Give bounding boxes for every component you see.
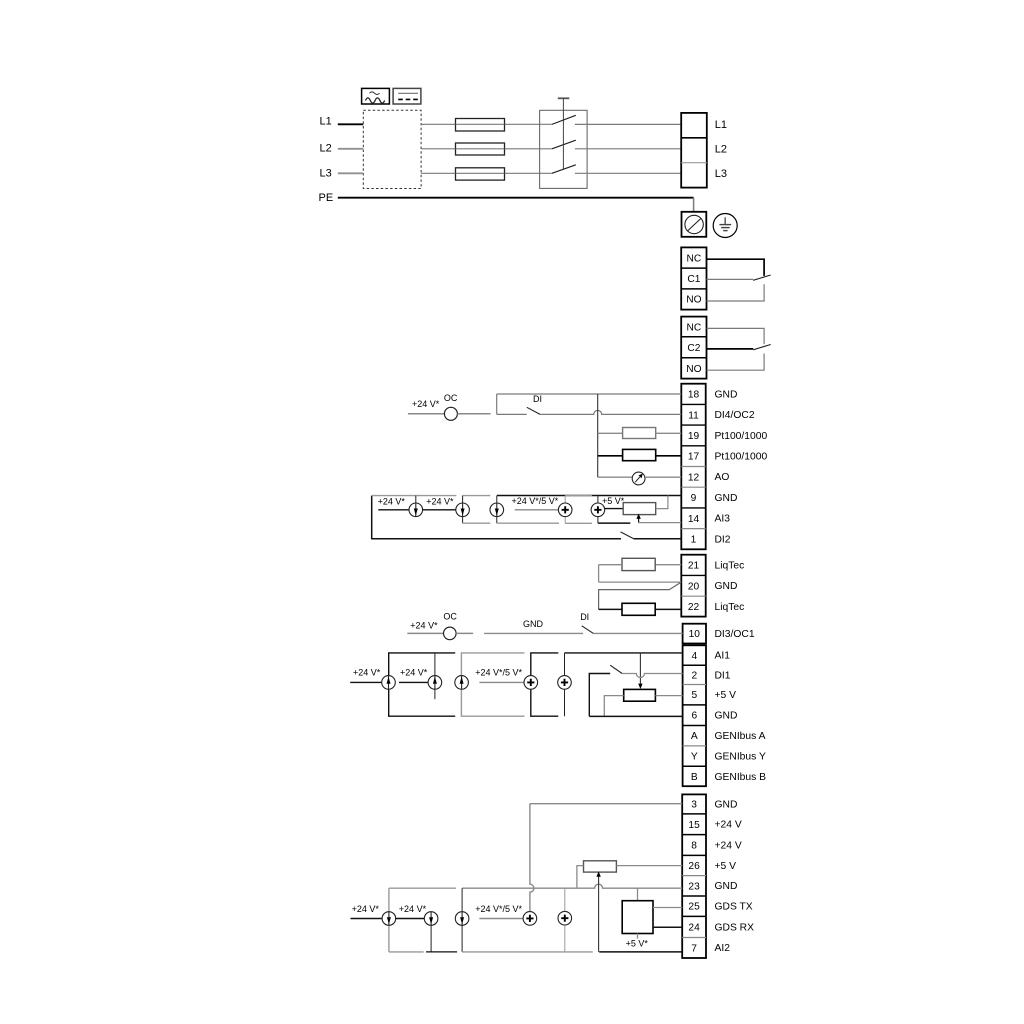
svg-text:+24 V*/5 V*: +24 V*/5 V* bbox=[512, 496, 559, 506]
svg-text:GENIbus A: GENIbus A bbox=[715, 731, 766, 742]
svg-text:GDS RX: GDS RX bbox=[715, 922, 755, 933]
svg-text:GENIbus B: GENIbus B bbox=[715, 772, 767, 783]
svg-text:+24 V*: +24 V* bbox=[353, 667, 381, 677]
svg-text:L2: L2 bbox=[320, 143, 332, 155]
svg-text:+24 V*: +24 V* bbox=[412, 399, 440, 409]
svg-text:GND: GND bbox=[715, 711, 738, 722]
svg-text:GND: GND bbox=[523, 619, 544, 629]
svg-text:DI4/OC2: DI4/OC2 bbox=[715, 410, 755, 421]
svg-text:6: 6 bbox=[691, 711, 697, 722]
svg-text:NO: NO bbox=[686, 295, 701, 306]
svg-text:AI1: AI1 bbox=[715, 651, 731, 662]
svg-text:2: 2 bbox=[691, 670, 697, 681]
svg-text:L3: L3 bbox=[320, 167, 332, 179]
svg-text:+24 V*/5 V*: +24 V*/5 V* bbox=[475, 904, 522, 914]
svg-text:+24 V*: +24 V* bbox=[410, 620, 438, 630]
svg-text:24: 24 bbox=[688, 923, 700, 934]
svg-text:DI1: DI1 bbox=[715, 670, 731, 681]
svg-text:14: 14 bbox=[688, 514, 700, 525]
svg-text:Y: Y bbox=[691, 752, 698, 763]
svg-text:8: 8 bbox=[691, 841, 697, 852]
svg-text:DI: DI bbox=[580, 612, 589, 622]
svg-text:1: 1 bbox=[691, 535, 697, 546]
svg-text:L1: L1 bbox=[715, 119, 727, 131]
svg-text:12: 12 bbox=[688, 473, 700, 484]
svg-text:+5 V*: +5 V* bbox=[602, 496, 625, 506]
svg-text:NC: NC bbox=[687, 253, 702, 264]
svg-text:+24 V: +24 V bbox=[715, 820, 742, 831]
svg-text:18: 18 bbox=[688, 390, 700, 401]
svg-text:23: 23 bbox=[688, 881, 700, 892]
svg-text:5: 5 bbox=[691, 690, 697, 701]
svg-text:20: 20 bbox=[688, 581, 700, 592]
svg-text:GND: GND bbox=[715, 493, 738, 504]
svg-text:AI2: AI2 bbox=[715, 943, 731, 954]
svg-text:22: 22 bbox=[688, 602, 700, 613]
svg-text:NC: NC bbox=[687, 323, 702, 334]
svg-text:17: 17 bbox=[688, 452, 700, 463]
svg-text:Pt100/1000: Pt100/1000 bbox=[715, 452, 768, 463]
svg-text:25: 25 bbox=[688, 902, 700, 913]
svg-text:LiqTec: LiqTec bbox=[715, 602, 745, 613]
svg-text:19: 19 bbox=[688, 431, 700, 442]
svg-text:A: A bbox=[691, 731, 698, 742]
svg-text:LiqTec: LiqTec bbox=[715, 560, 745, 571]
svg-text:DI2: DI2 bbox=[715, 534, 731, 545]
svg-text:DI3/OC1: DI3/OC1 bbox=[715, 629, 755, 640]
svg-text:L3: L3 bbox=[715, 168, 727, 180]
svg-text:26: 26 bbox=[688, 861, 700, 872]
svg-text:+5 V: +5 V bbox=[715, 861, 737, 872]
svg-text:+5 V: +5 V bbox=[715, 690, 737, 701]
svg-text:PE: PE bbox=[319, 192, 334, 204]
svg-text:AI3: AI3 bbox=[715, 514, 731, 525]
svg-text:+24 V*/5 V*: +24 V*/5 V* bbox=[475, 667, 522, 677]
svg-text:GND: GND bbox=[715, 581, 738, 592]
svg-text:Pt100/1000: Pt100/1000 bbox=[715, 431, 768, 442]
svg-text:GENIbus Y: GENIbus Y bbox=[715, 752, 766, 763]
svg-text:+24 V: +24 V bbox=[715, 840, 742, 851]
svg-text:+24 V*: +24 V* bbox=[378, 496, 406, 506]
svg-text:15: 15 bbox=[688, 820, 700, 831]
svg-text:11: 11 bbox=[688, 410, 699, 421]
svg-text:+24 V*: +24 V* bbox=[400, 667, 428, 677]
svg-text:3: 3 bbox=[691, 800, 697, 811]
svg-text:C1: C1 bbox=[687, 274, 700, 285]
svg-text:GND: GND bbox=[715, 389, 738, 400]
svg-text:AO: AO bbox=[715, 472, 730, 483]
svg-text:DI: DI bbox=[533, 394, 542, 404]
svg-text:4: 4 bbox=[691, 651, 697, 662]
svg-text:B: B bbox=[691, 772, 698, 783]
svg-text:7: 7 bbox=[691, 943, 697, 954]
svg-text:GDS TX: GDS TX bbox=[715, 902, 753, 913]
svg-text:NO: NO bbox=[686, 364, 701, 375]
svg-text:+24 V*: +24 V* bbox=[399, 904, 427, 914]
svg-text:10: 10 bbox=[689, 629, 701, 640]
svg-text:OC: OC bbox=[443, 612, 457, 622]
svg-text:GND: GND bbox=[715, 881, 738, 892]
svg-text:21: 21 bbox=[688, 561, 700, 572]
svg-text:+24 V*: +24 V* bbox=[426, 496, 454, 506]
svg-text:GND: GND bbox=[715, 800, 738, 811]
svg-text:OC: OC bbox=[444, 393, 458, 403]
svg-text:L2: L2 bbox=[715, 143, 727, 155]
svg-text:+5 V*: +5 V* bbox=[626, 939, 649, 949]
svg-text:+24 V*: +24 V* bbox=[352, 904, 380, 914]
svg-text:C2: C2 bbox=[687, 343, 700, 354]
svg-text:9: 9 bbox=[691, 493, 697, 504]
svg-text:L1: L1 bbox=[320, 116, 332, 128]
